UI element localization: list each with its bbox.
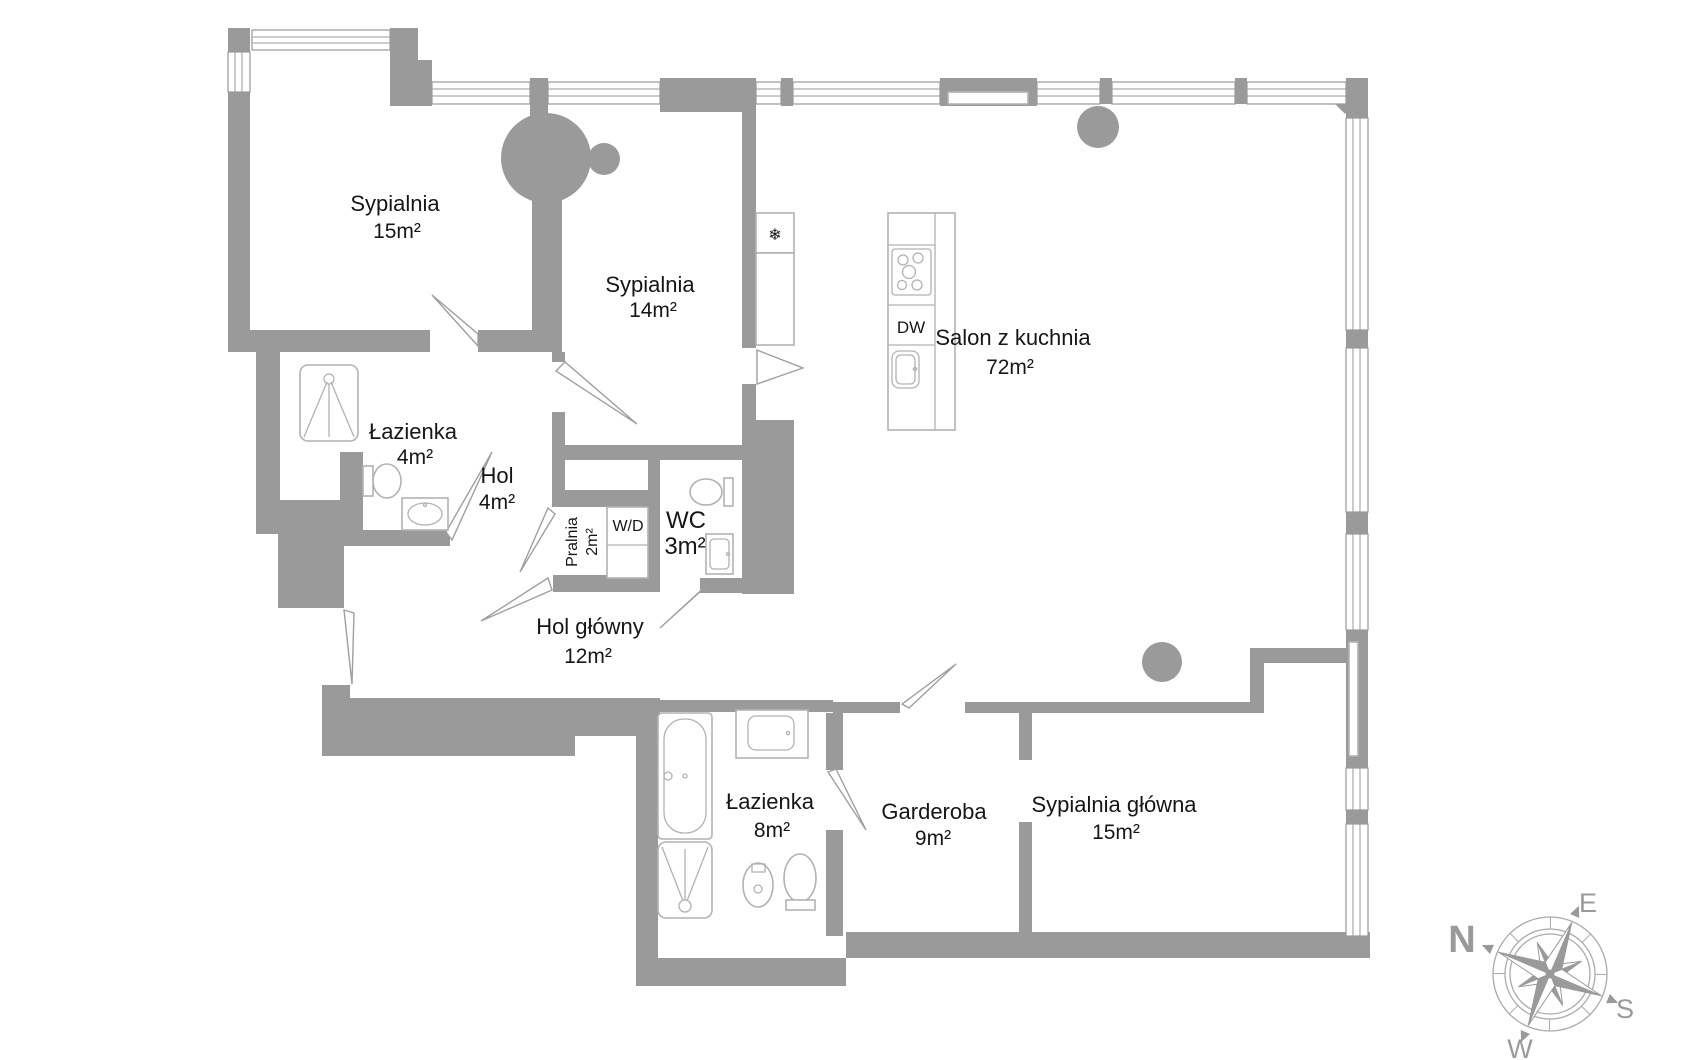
room-hol: Hol 4m² <box>479 463 515 514</box>
washer-dryer-label: W/D <box>612 518 643 535</box>
north-arrow-icon <box>1480 940 1494 954</box>
window <box>1346 768 1368 810</box>
room-hol-glowny: Hol główny 12m² <box>536 614 644 668</box>
room-sypialnia-glowna: Sypialnia główna 15m² <box>1031 792 1197 844</box>
room-lazienka-4: Łazienka 4m² <box>369 419 458 469</box>
room-name: Garderoba <box>881 799 987 824</box>
kitchen-counter <box>756 253 794 345</box>
sink <box>706 534 733 574</box>
room-name: Łazienka <box>369 419 458 444</box>
room-area: 9m² <box>915 827 951 850</box>
column <box>1077 106 1119 148</box>
fridge: ❄ <box>756 213 794 253</box>
walls <box>228 28 1370 986</box>
room-name: Sypialnia główna <box>1031 792 1197 817</box>
room-area: 4m² <box>479 491 515 514</box>
room-lazienka-8: Łazienka 8m² <box>726 789 815 842</box>
window <box>793 82 940 104</box>
window <box>1247 82 1346 104</box>
window <box>432 82 530 104</box>
room-sypialnia-14: Sypialnia 14m² <box>605 272 695 322</box>
room-sypialnia-15: Sypialnia 15m² <box>350 191 440 243</box>
compass-south-label: S <box>1616 994 1634 1024</box>
sink <box>402 498 448 530</box>
door-salon-sypialnia-14 <box>757 350 803 384</box>
sink <box>736 710 808 758</box>
door-pralnia <box>520 508 555 572</box>
toilet <box>784 854 816 910</box>
door-sypialnia-14 <box>556 362 637 424</box>
room-salon: Salon z kuchnia 72m² <box>935 325 1091 379</box>
room-name: Hol główny <box>536 614 644 639</box>
room-name: Sypialnia <box>350 191 440 216</box>
window <box>1346 118 1368 330</box>
door-wc <box>660 584 708 628</box>
entry-door <box>344 610 354 684</box>
shower <box>300 365 358 441</box>
toilet <box>690 478 733 506</box>
door-sypialnia-15 <box>432 295 478 346</box>
room-area: 15m² <box>1092 821 1140 844</box>
room-name: Pralnia <box>564 517 581 567</box>
door-garderoba <box>902 664 956 708</box>
room-area: 3m² <box>664 533 705 560</box>
shower <box>658 842 712 918</box>
room-name: Łazienka <box>726 789 815 814</box>
fridge-snowflake-icon: ❄ <box>768 227 781 244</box>
room-name: WC <box>666 507 706 534</box>
room-garderoba: Garderoba 9m² <box>881 799 987 850</box>
bathtub <box>658 713 712 839</box>
room-name: Sypialnia <box>605 272 695 297</box>
kitchen-island: DW <box>888 213 955 430</box>
compass-north-label: N <box>1448 919 1475 961</box>
window <box>548 82 660 104</box>
window <box>228 52 250 92</box>
window <box>1346 824 1368 936</box>
room-area: 72m² <box>986 356 1034 379</box>
window <box>1037 82 1100 104</box>
room-area: 2m² <box>584 528 601 556</box>
room-wc: WC 3m² <box>664 507 706 560</box>
compass-east-label: E <box>1579 888 1597 918</box>
room-area: 8m² <box>754 819 790 842</box>
room-name: Salon z kuchnia <box>935 325 1091 350</box>
window <box>252 30 390 50</box>
window <box>1346 534 1368 630</box>
bidet <box>743 863 773 907</box>
room-area: 15m² <box>373 220 421 243</box>
compass-rose: N E S W <box>1448 877 1647 1060</box>
compass-west-label: W <box>1507 1034 1533 1060</box>
window <box>756 82 781 104</box>
window <box>1112 82 1235 104</box>
room-area: 14m² <box>629 299 677 322</box>
column <box>1142 642 1182 682</box>
toilet <box>363 464 401 498</box>
floor-plan: ❄ DW <box>0 0 1697 1060</box>
room-area: 4m² <box>397 446 433 469</box>
door-lazienka-8 <box>828 769 866 830</box>
dishwasher-label: DW <box>897 318 925 337</box>
floor-plan-page: ❄ DW <box>0 0 1697 1060</box>
window <box>1346 348 1368 512</box>
room-name: Hol <box>480 463 513 488</box>
room-area: 12m² <box>564 645 612 668</box>
